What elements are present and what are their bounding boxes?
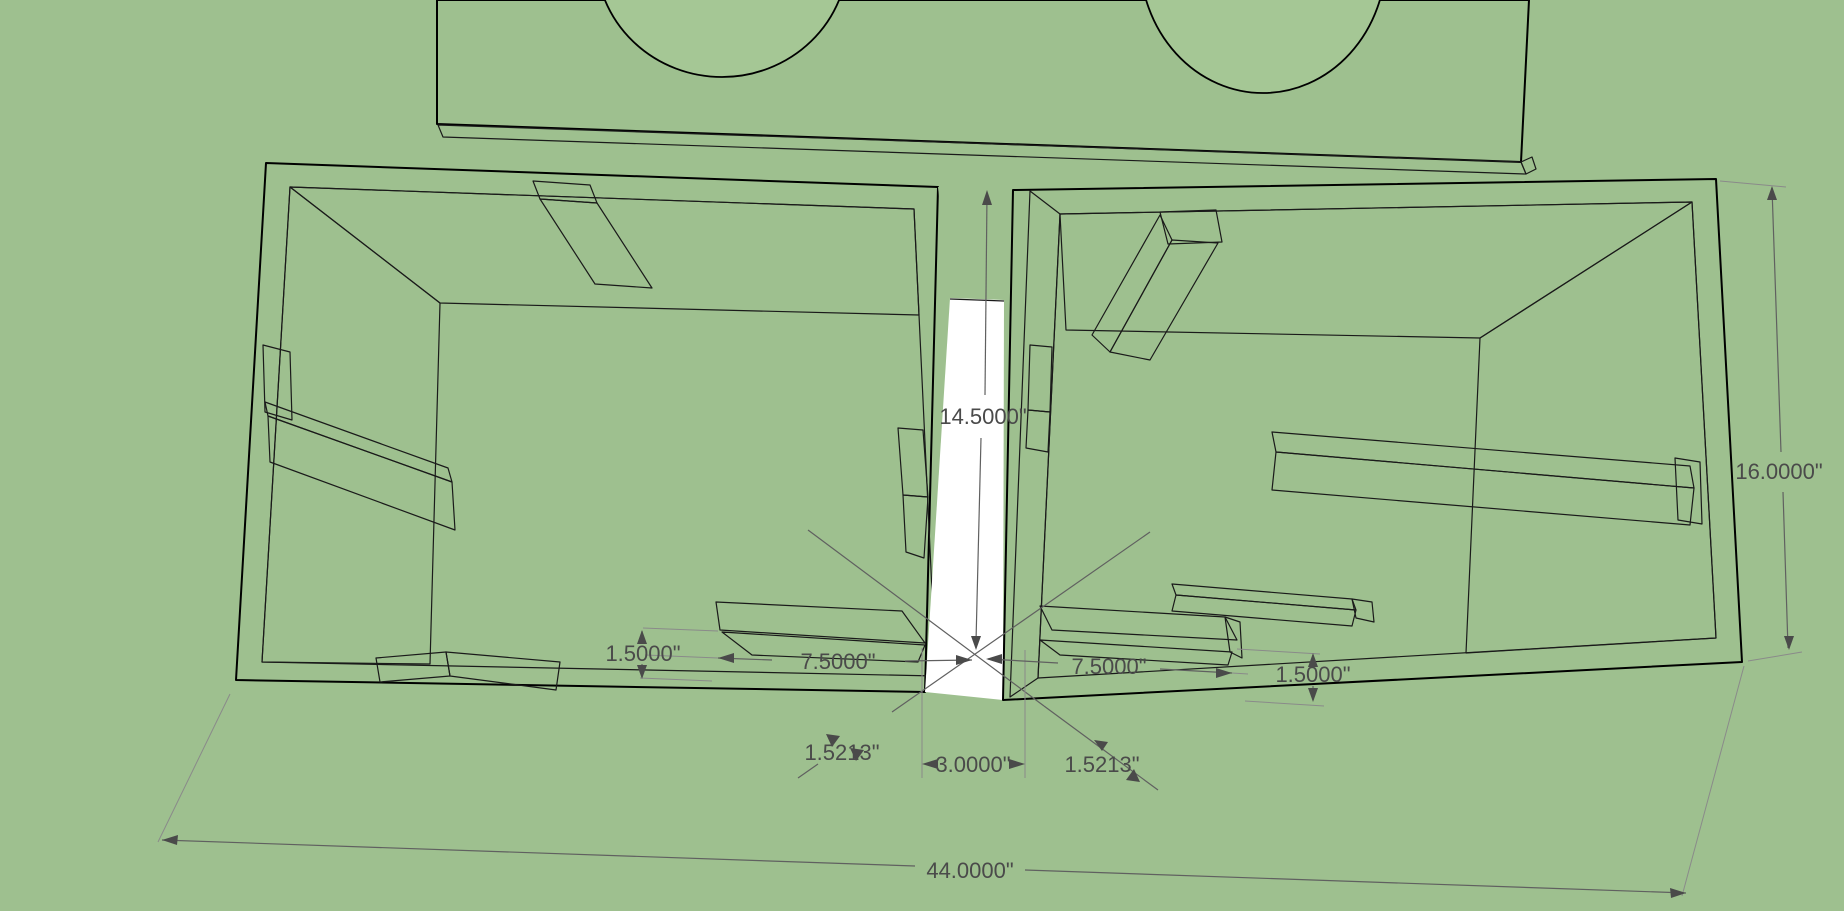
dim-label-right-diagonal: 1.5213" — [1064, 752, 1139, 777]
dim-label-left-diagonal: 1.5213" — [804, 740, 879, 765]
dim-label-right-thickness: 1.5000" — [1275, 662, 1350, 687]
dim-label-center-slot: 3.0000" — [935, 752, 1010, 777]
model-viewport[interactable]: 14.5000" 1.5213" 1.5213" 3.0000" — [0, 0, 1844, 911]
dim-label-left-span: 7.5000" — [800, 649, 875, 674]
dim-label-center-height: 14.5000" — [939, 404, 1026, 429]
dim-label-left-thickness: 1.5000" — [605, 641, 680, 666]
dim-label-overall-width: 44.0000" — [926, 858, 1013, 883]
dim-label-right-side-height: 16.0000" — [1735, 459, 1822, 484]
dim-label-right-span: 7.5000" — [1071, 654, 1146, 679]
